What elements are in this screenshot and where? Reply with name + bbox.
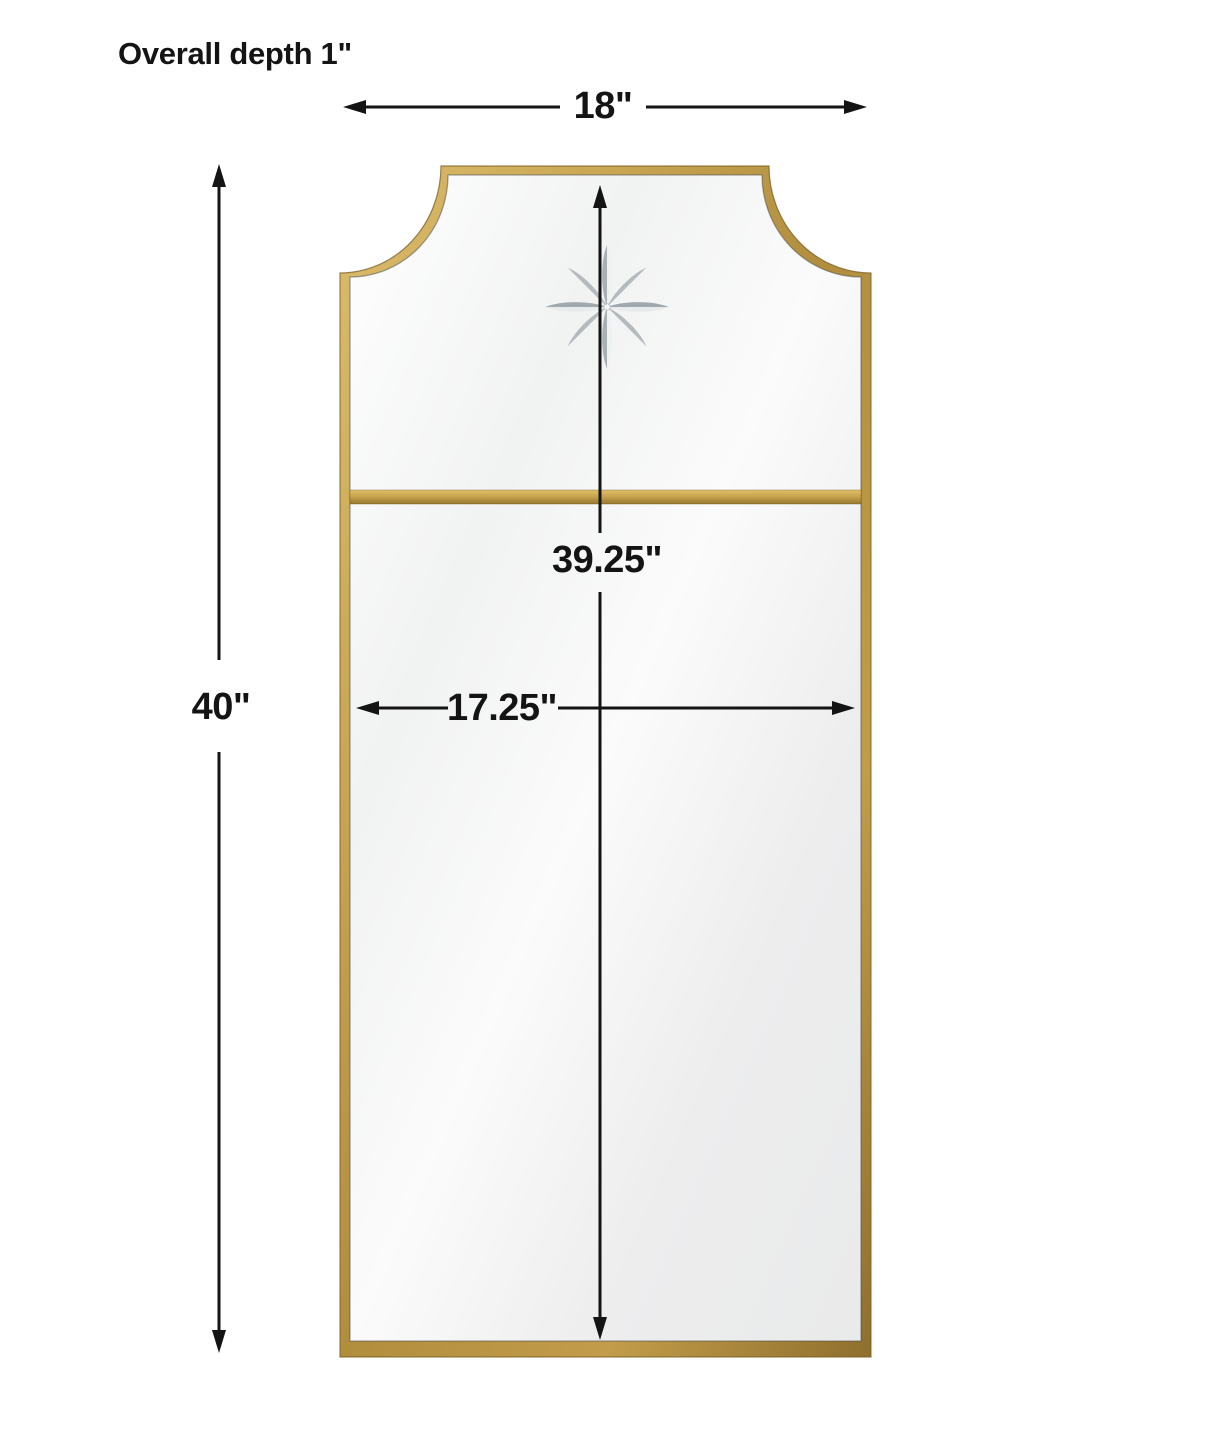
arrowhead-left — [343, 100, 366, 114]
mirror-divider-bar — [350, 490, 861, 504]
overall-height-label: 40" — [192, 688, 251, 726]
product-dimension-diagram: Overall depth 1" 18" 40" 39.25" 17.25" — [0, 0, 1214, 1440]
diagram-canvas — [0, 0, 1214, 1440]
star-center — [604, 304, 610, 310]
arrowhead-down — [212, 1330, 226, 1353]
arrowhead-up — [212, 164, 226, 187]
arrowhead-right — [844, 100, 867, 114]
mirror-illustration — [340, 166, 871, 1357]
overall-width-label: 18" — [574, 87, 633, 125]
overall-height-dimension-line — [212, 164, 226, 1353]
glass-height-label: 39.25" — [552, 541, 662, 579]
glass-width-label: 17.25" — [447, 689, 557, 727]
overall-depth-note: Overall depth 1" — [118, 38, 352, 69]
